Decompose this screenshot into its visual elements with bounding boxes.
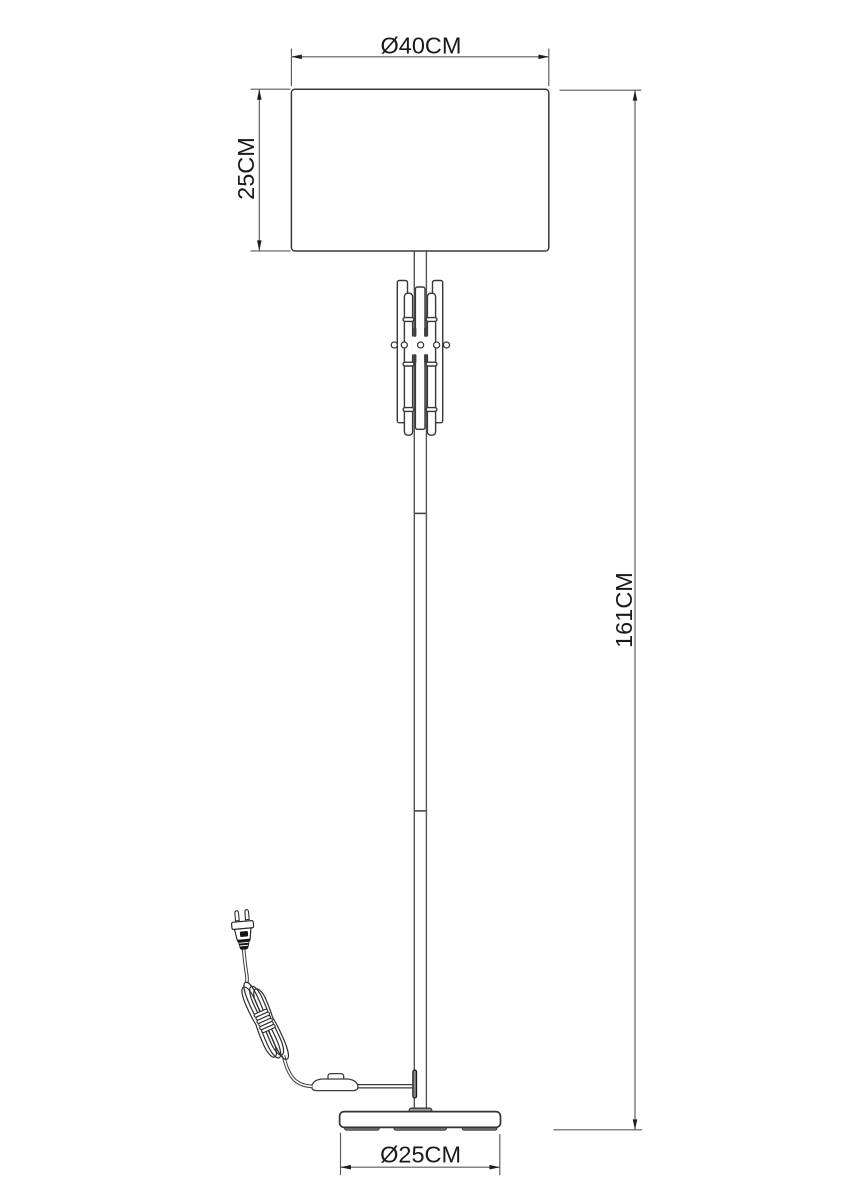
svg-text:Ø25CM: Ø25CM bbox=[380, 1141, 461, 1167]
svg-text:161CM: 161CM bbox=[611, 572, 637, 648]
svg-text:Ø40CM: Ø40CM bbox=[381, 32, 462, 58]
svg-text:25CM: 25CM bbox=[233, 137, 259, 200]
